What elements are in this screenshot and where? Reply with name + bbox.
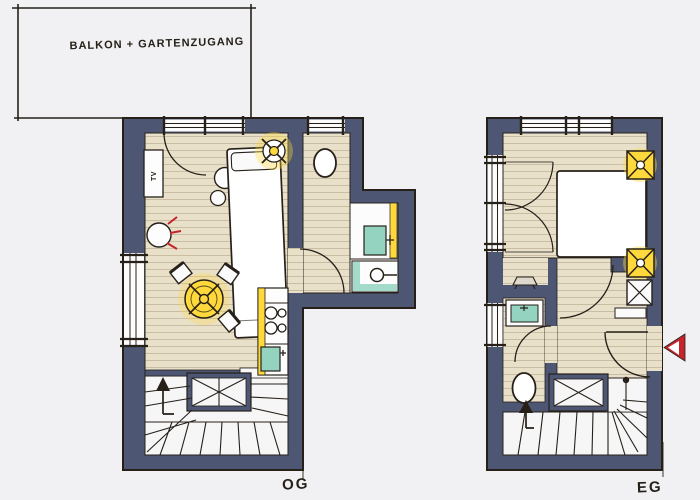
- eg-wall-lamp-top-icon: [623, 148, 657, 182]
- eg-shaft-icon: [627, 280, 652, 305]
- og-bathroom-sink-icon: [364, 226, 386, 255]
- og-kitchen-sink-icon: [261, 347, 280, 371]
- eg-toilet-icon: [513, 373, 536, 403]
- og-tv-label: TV: [151, 171, 158, 181]
- og-shower-icon: [352, 261, 398, 292]
- og-toilet-icon: [314, 149, 336, 177]
- eg-entry-opening: [647, 326, 662, 371]
- og-window-left: [124, 253, 144, 347]
- og-dining-lamp-center: [200, 295, 209, 304]
- eg-floor-label: EG: [637, 479, 663, 497]
- og-ceiling-lamp-bed-icon: [255, 132, 293, 170]
- og-vanity-counter-edge: [390, 203, 397, 258]
- og-kitchen: [258, 288, 288, 375]
- eg-wall-shelf: [615, 308, 646, 318]
- floor-plan-canvas: BALKON + GARTENZUGANG TV: [0, 0, 700, 500]
- eg-window-bathroom: [488, 303, 503, 347]
- og-lamp-center: [270, 147, 279, 156]
- eg-bathroom-sink-unit: [506, 300, 543, 326]
- og-side-table-small: [211, 191, 226, 206]
- og-window-bathroom: [307, 120, 345, 132]
- floor-plan-eg: EG: [484, 116, 685, 496]
- eg-stair-newel-post: [623, 377, 629, 383]
- eg-bathroom-door-opening: [545, 326, 557, 363]
- eg-double-bed: [557, 171, 646, 257]
- og-floor-label: OG: [282, 475, 310, 493]
- eg-wall-lamp-bottom-icon: [623, 246, 657, 280]
- og-bathroom-door-opening: [288, 248, 303, 293]
